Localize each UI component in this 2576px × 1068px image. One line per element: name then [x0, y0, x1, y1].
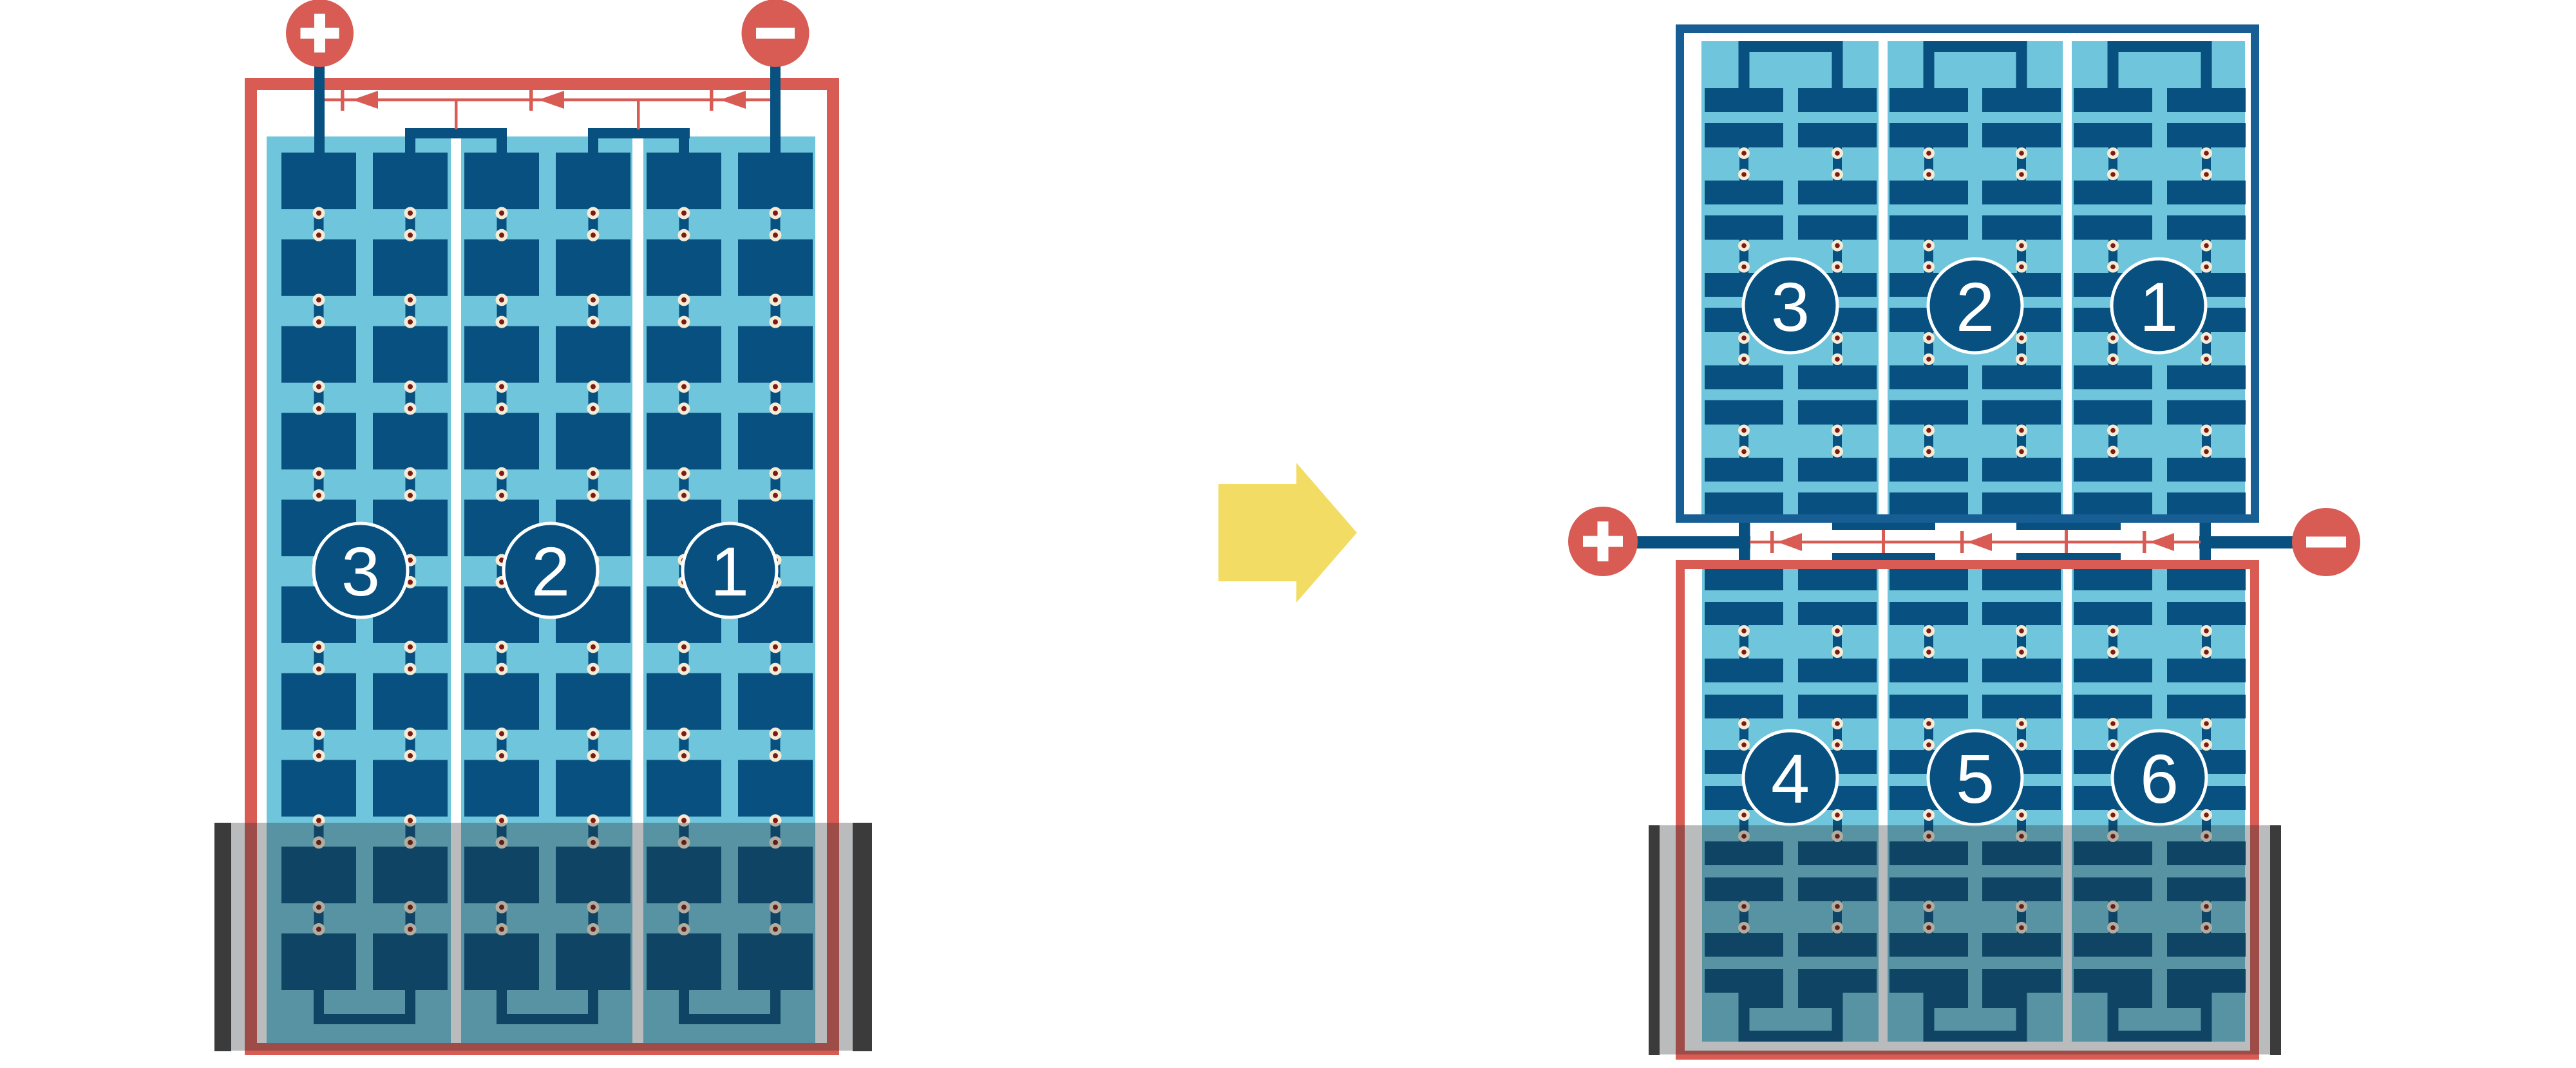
svg-text:2: 2: [531, 532, 570, 610]
svg-text:1: 1: [2139, 268, 2178, 346]
svg-text:5: 5: [1956, 740, 1994, 818]
svg-text:3: 3: [1771, 268, 1810, 346]
svg-text:3: 3: [341, 532, 380, 610]
svg-text:1: 1: [710, 532, 749, 610]
svg-text:4: 4: [1771, 740, 1810, 818]
svg-text:2: 2: [1956, 268, 1994, 346]
svg-text:6: 6: [2140, 740, 2179, 818]
